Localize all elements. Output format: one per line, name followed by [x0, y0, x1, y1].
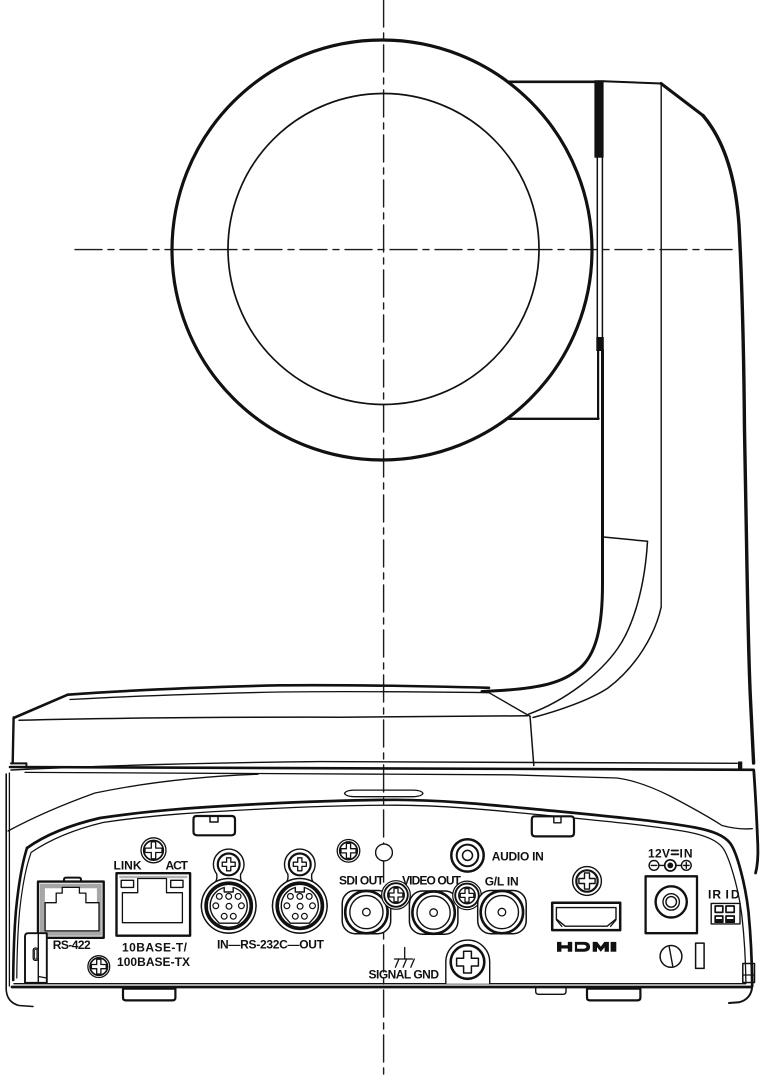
svg-text:VIDEO OUT: VIDEO OUT [402, 873, 462, 887]
svg-text:SIGNAL GND: SIGNAL GND [369, 968, 440, 982]
svg-text:LINK: LINK [114, 859, 142, 873]
svg-text:10BASE-T/: 10BASE-T/ [122, 940, 188, 954]
svg-text:100BASE-TX: 100BASE-TX [117, 955, 190, 969]
svg-text:AUDIO IN: AUDIO IN [492, 849, 544, 863]
svg-text:ID: ID [726, 887, 740, 901]
svg-text:IN: IN [680, 846, 693, 860]
svg-text:IR: IR [708, 887, 721, 901]
svg-text:SDI OUT: SDI OUT [339, 873, 385, 887]
svg-text:G/L IN: G/L IN [485, 874, 519, 888]
svg-text:RS-422: RS-422 [53, 938, 91, 952]
svg-text:ACT: ACT [166, 859, 189, 873]
svg-text:IN—RS-232C—OUT: IN—RS-232C—OUT [217, 937, 325, 951]
svg-text:12V: 12V [648, 846, 670, 860]
